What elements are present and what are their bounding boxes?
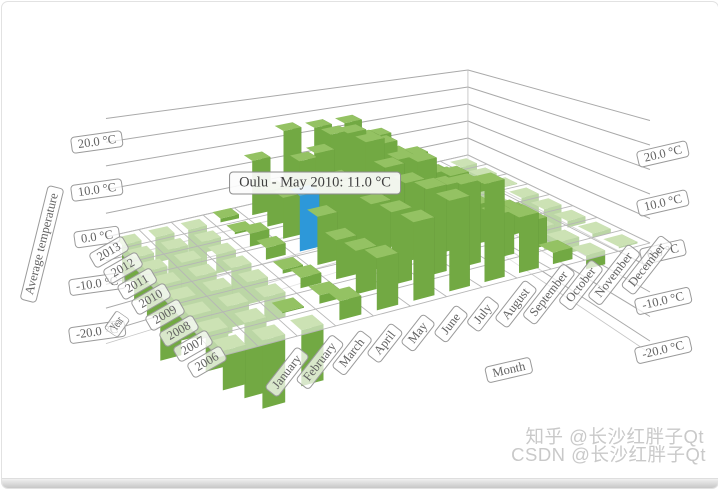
bar-graph-3d-scene[interactable] bbox=[2, 2, 718, 479]
window-bottom-edge bbox=[2, 478, 718, 488]
app-window: 20.0 °C20.0 °C10.0 °C10.0 °C0.0 °C0.0 °C… bbox=[1, 1, 718, 489]
selection-tooltip: Oulu - May 2010: 11.0 °C bbox=[229, 172, 401, 195]
watermark-csdn: CSDN @长沙红胖子Qt bbox=[511, 441, 706, 467]
